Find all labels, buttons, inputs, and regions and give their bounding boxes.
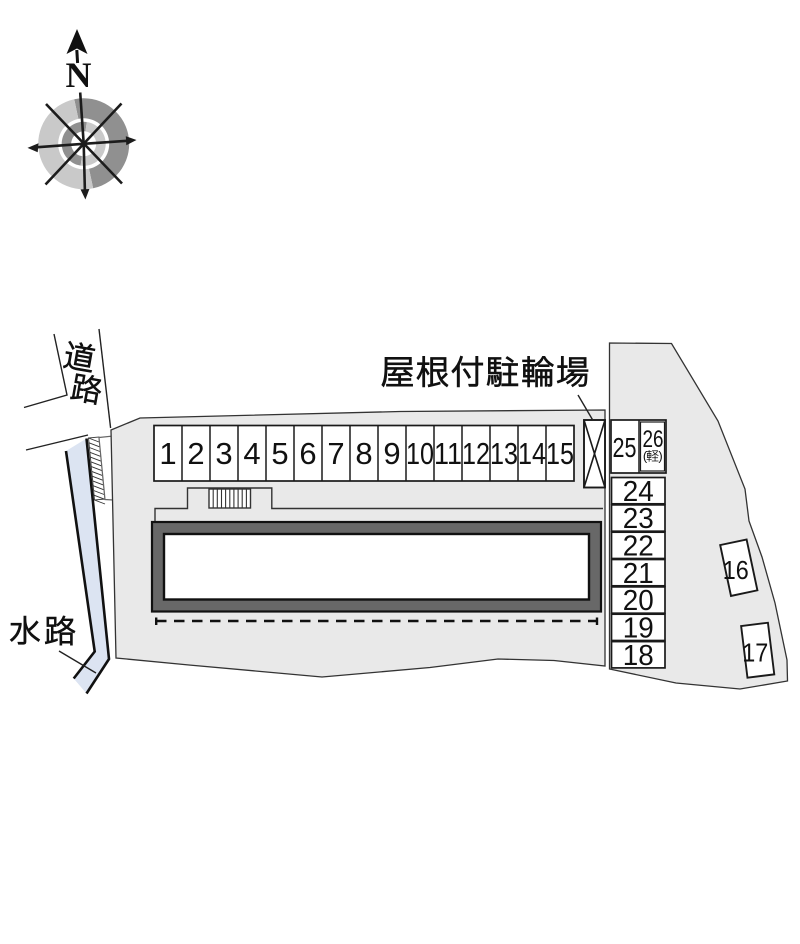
svg-text:16: 16 — [723, 555, 749, 585]
svg-text:4: 4 — [243, 436, 260, 471]
svg-text:3: 3 — [215, 436, 232, 471]
svg-text:18: 18 — [623, 640, 654, 672]
svg-text:13: 13 — [490, 436, 518, 471]
svg-text:N: N — [66, 55, 92, 95]
svg-text:): ) — [658, 449, 662, 464]
svg-text:1: 1 — [159, 436, 176, 471]
svg-text:6: 6 — [299, 436, 316, 471]
svg-text:2: 2 — [187, 436, 204, 471]
svg-text:12: 12 — [462, 436, 490, 471]
svg-text:9: 9 — [383, 436, 400, 471]
svg-text:15: 15 — [546, 436, 574, 471]
svg-text:25: 25 — [613, 432, 637, 463]
svg-text:8: 8 — [355, 436, 372, 471]
svg-text:5: 5 — [271, 436, 288, 471]
svg-text:7: 7 — [327, 436, 344, 471]
svg-text:11: 11 — [434, 436, 462, 471]
svg-text:14: 14 — [518, 436, 546, 471]
svg-text:10: 10 — [406, 436, 434, 471]
svg-text:17: 17 — [742, 638, 768, 668]
